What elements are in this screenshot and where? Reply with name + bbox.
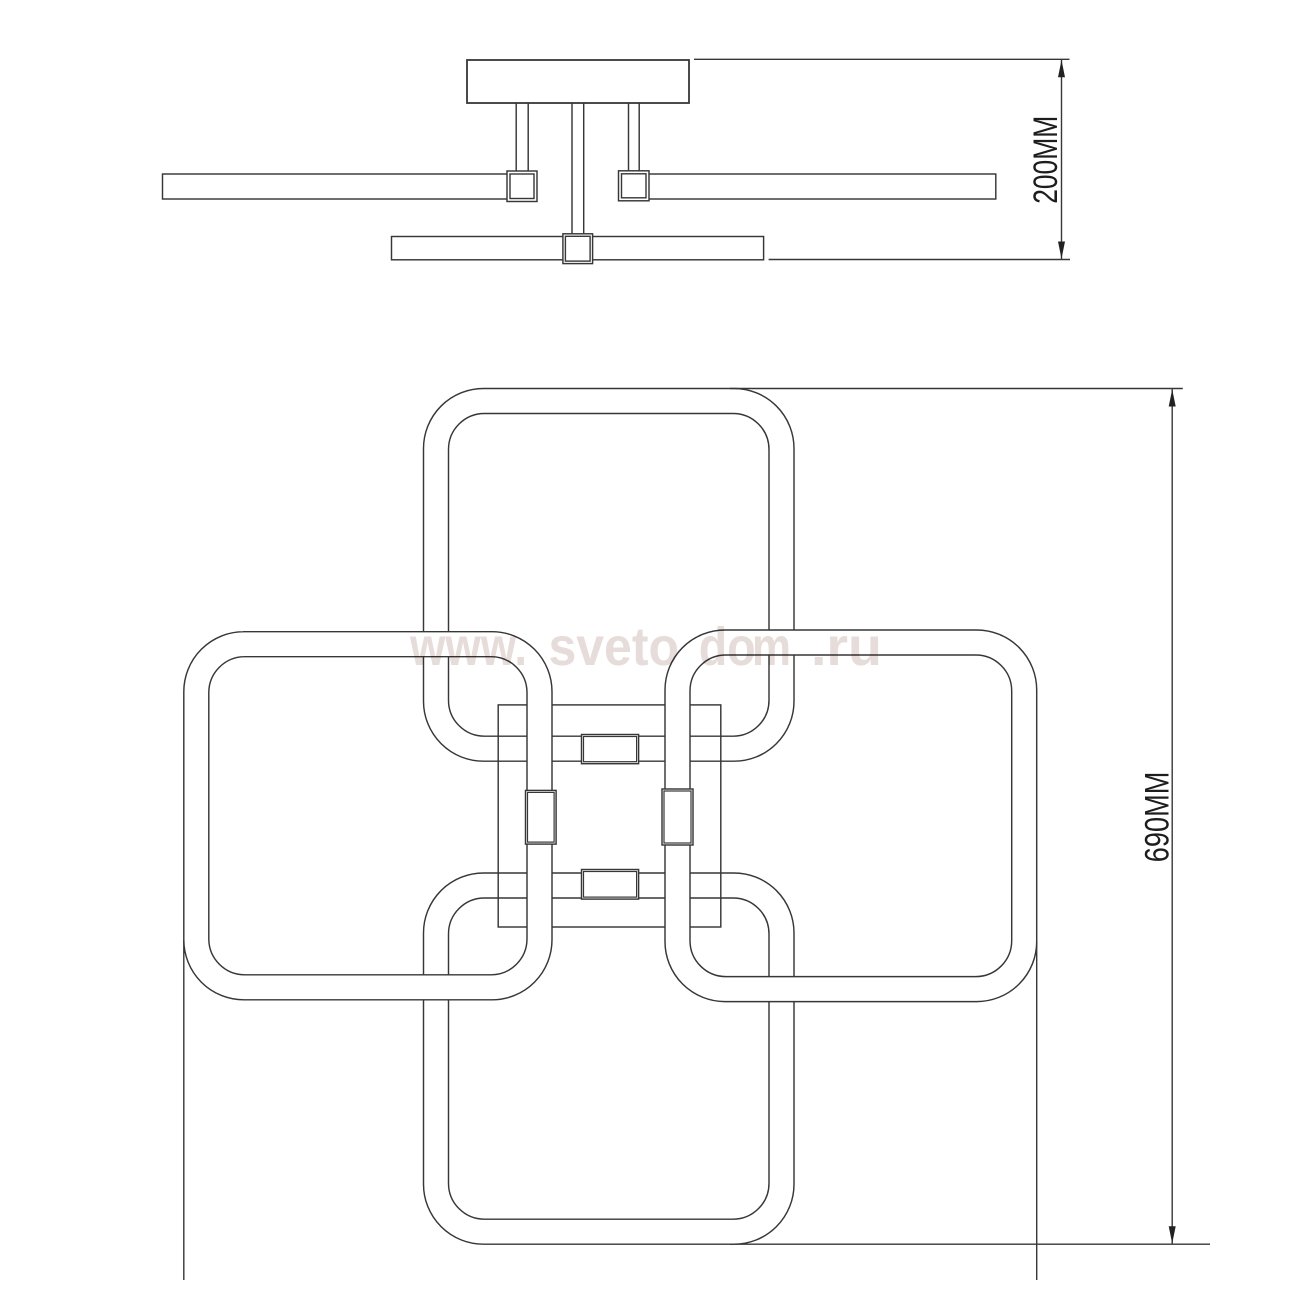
svg-text:200MM: 200MM — [1027, 116, 1065, 204]
svg-text:m: m — [752, 617, 791, 677]
svg-text:www.: www. — [409, 617, 527, 677]
svg-text:do: do — [699, 617, 756, 677]
svg-text:sveto: sveto — [549, 617, 680, 677]
svg-text:690MM: 690MM — [1138, 772, 1176, 863]
svg-text:.ru: .ru — [811, 617, 882, 677]
